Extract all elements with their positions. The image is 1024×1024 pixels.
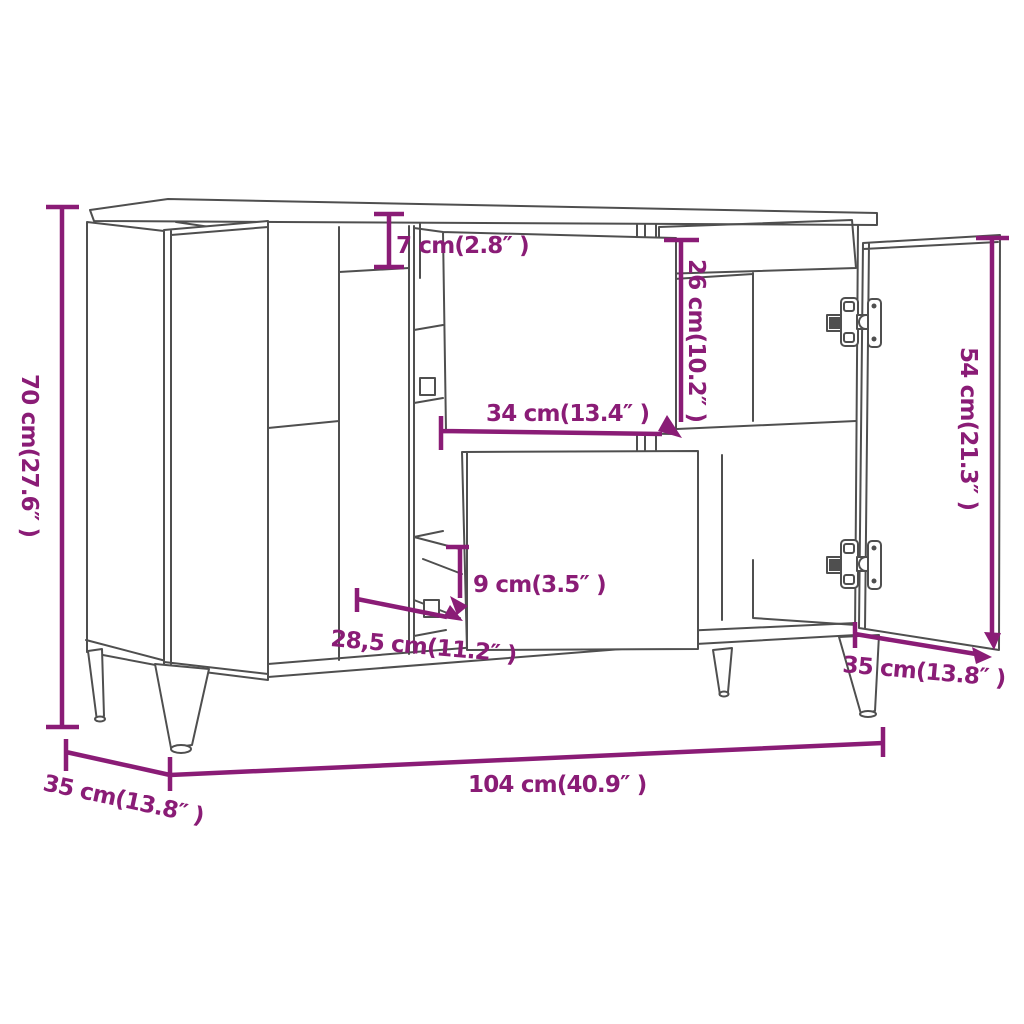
leg-back-left xyxy=(88,649,104,721)
leg-foot xyxy=(171,745,191,753)
dim-height-line xyxy=(46,207,79,727)
dim-depth-label: 35 cm(13.8″ ) xyxy=(41,770,206,829)
hinge-bottom xyxy=(827,540,881,589)
leg-foot xyxy=(860,711,876,717)
leg-foot xyxy=(720,692,729,697)
dim-width-line xyxy=(170,727,883,775)
cabinet-top xyxy=(90,199,877,225)
diagram-stage: 70 cm(27.6″ ) 7 cm(2.8″ ) 26 cm(10.2″ ) … xyxy=(0,0,1024,1024)
runner-bracket xyxy=(420,378,439,617)
dim-lower-drawer-label: 9 cm(3.5″ ) xyxy=(473,572,606,598)
hinge-top xyxy=(827,298,881,347)
sideboard-dimension-diagram: 70 cm(27.6″ ) 7 cm(2.8″ ) 26 cm(10.2″ ) … xyxy=(0,0,1024,1024)
dim-height-label: 70 cm(27.6″ ) xyxy=(16,374,42,537)
dim-drawer-width-label: 34 cm(13.4″ ) xyxy=(486,401,649,427)
dim-door-height-label: 54 cm(21.3″ ) xyxy=(955,347,981,510)
leg-front-left xyxy=(155,664,209,748)
arrowhead xyxy=(972,647,992,664)
left-door-open xyxy=(164,221,268,680)
lower-open-drawer xyxy=(462,451,698,650)
center-divider-shelf xyxy=(268,227,409,660)
dim-drawer-opening-label: 26 cm(10.2″ ) xyxy=(683,259,709,422)
dim-top-drawer-label: 7 cm(2.8″ ) xyxy=(396,233,529,259)
leg-back-right xyxy=(713,648,732,695)
dim-width-label: 104 cm(40.9″ ) xyxy=(468,772,646,798)
leg-foot xyxy=(95,717,105,722)
